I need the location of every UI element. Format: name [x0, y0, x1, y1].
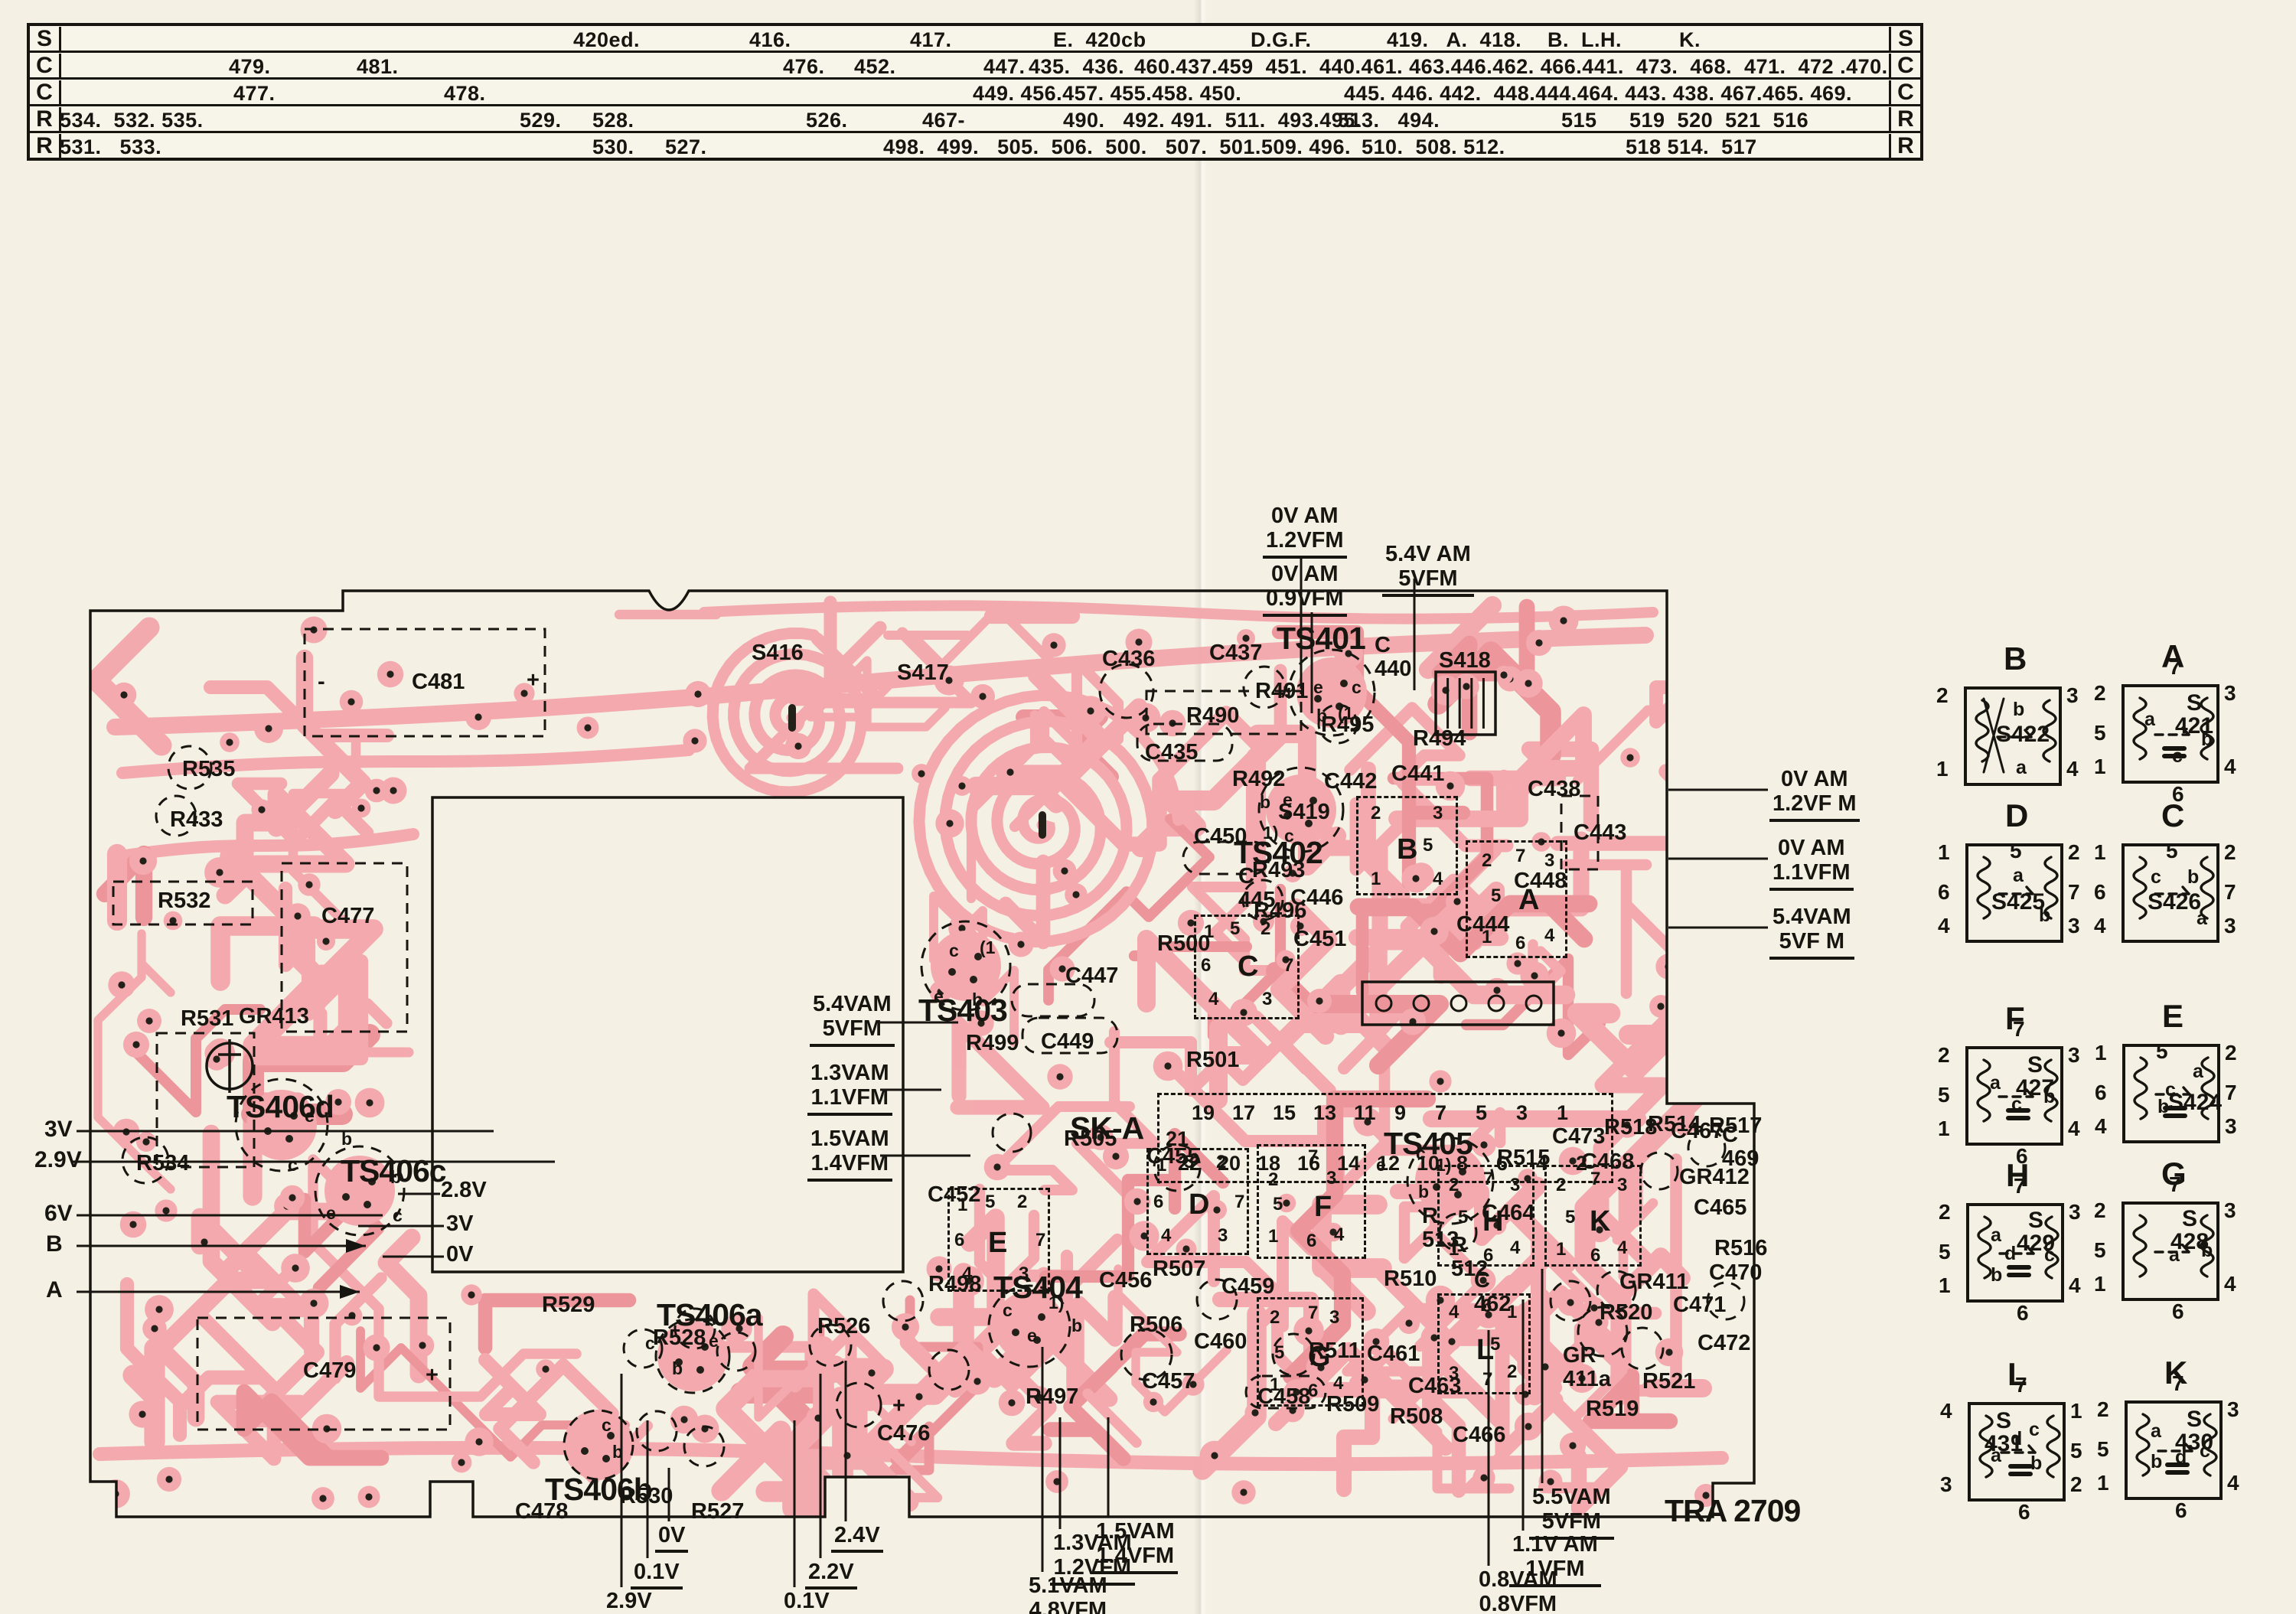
connector-pin: 2	[1371, 803, 1381, 824]
module-pin: 2	[2094, 681, 2106, 706]
sk-a-pin: 15	[1273, 1101, 1296, 1125]
module-pin: 5	[1939, 1240, 1951, 1264]
module-pin: 3	[2225, 1114, 2237, 1139]
voltage-callout: 0.1V	[631, 1560, 683, 1590]
module-coil-letter: a	[2197, 908, 2207, 930]
module-coil-letter: c	[2151, 866, 2161, 889]
module-coil-letter: a	[2016, 757, 2027, 779]
component-label: c	[1003, 1301, 1013, 1320]
component-label: C450	[1194, 825, 1247, 849]
component-label: GR411	[1619, 1270, 1688, 1294]
component-label: C470	[1709, 1261, 1762, 1285]
module-coil-letter: c	[2200, 1440, 2210, 1462]
connector-letter: C	[1238, 950, 1258, 983]
sk-a-pin: 7	[1435, 1101, 1446, 1125]
module-pin: 1	[2095, 1041, 2107, 1065]
module-pin: 6	[2094, 880, 2106, 905]
component-label: TS405	[1384, 1127, 1473, 1160]
module-letter: E	[2162, 998, 2183, 1035]
module-coil-letter: a	[2169, 1244, 2180, 1267]
component-label: c	[393, 1206, 403, 1225]
module-pin: 3	[2227, 1397, 2239, 1422]
component-label: R507	[1153, 1257, 1205, 1281]
component-label: 2.9V	[34, 1148, 82, 1172]
component-label: C444	[1456, 913, 1509, 937]
module-code: S424	[2168, 1091, 2222, 1114]
component-label: TS401	[1277, 621, 1365, 655]
component-label: R491	[1255, 680, 1308, 703]
module-pin: 2	[1938, 1043, 1950, 1068]
component-label: A	[46, 1278, 63, 1303]
sk-a-pin: 13	[1313, 1101, 1336, 1125]
module-pin: 3	[1940, 1472, 1952, 1497]
component-label: 1)	[1049, 1293, 1064, 1312]
transformer-module-G: GS 428ab7251346	[2122, 1156, 2219, 1355]
component-label: 0V	[446, 1243, 473, 1267]
module-pin: 7	[2169, 1172, 2181, 1197]
component-label: R527	[691, 1500, 744, 1524]
module-pin: 4	[2066, 757, 2079, 781]
transformer-module-L: LS 431adcb7431526	[1968, 1356, 2066, 1555]
component-label: c	[645, 1334, 655, 1353]
sk-a-pin: 16	[1297, 1152, 1320, 1175]
component-label: 6V	[44, 1202, 73, 1226]
module-pin: 6	[2018, 1500, 2030, 1524]
component-label: C452	[928, 1183, 980, 1207]
module-coil-letter: b	[2030, 1453, 2042, 1475]
component-label: R532	[158, 889, 210, 913]
voltage-callout: 5.4VAM 5VFM	[810, 992, 895, 1047]
component-label: C468	[1581, 1150, 1634, 1174]
component-label: b	[341, 1130, 352, 1149]
connector-pin: 3	[1218, 1225, 1228, 1247]
module-pin: 7	[2068, 880, 2080, 905]
module-pin: 1	[1938, 1117, 1950, 1141]
module-coil-letter: a	[1990, 1072, 2001, 1094]
component-label: C435	[1145, 741, 1198, 765]
voltage-callout: 1.5VAM 1.4VFM	[807, 1127, 892, 1182]
component-label: C478	[515, 1500, 568, 1524]
connector-pin: 5	[1490, 1334, 1500, 1355]
sk-a-pin: 11	[1354, 1101, 1376, 1125]
voltage-callout: 2.2V	[805, 1560, 857, 1590]
module-box: S 431adcb	[1968, 1402, 2066, 1502]
component-label: 1)	[1436, 1156, 1451, 1175]
connector-pin: 7	[1035, 1230, 1045, 1251]
component-label: e	[305, 1107, 315, 1126]
sk-a-pin: 20	[1218, 1152, 1241, 1175]
component-label: b	[672, 1359, 683, 1378]
connector-pin: 7	[1308, 1303, 1318, 1324]
component-label: C 462	[1474, 1269, 1511, 1317]
component-label: b	[612, 1443, 623, 1462]
component-label: R506	[1130, 1313, 1182, 1337]
component-label: SK-A	[1070, 1111, 1143, 1145]
component-label: e	[326, 1204, 336, 1223]
voltage-callout: 0V AM 1.2VFM	[1263, 504, 1347, 559]
module-pin: 1	[2070, 1399, 2082, 1423]
module-pin: 3	[2224, 681, 2236, 706]
module-pin: 5	[2094, 721, 2106, 745]
component-label: C436	[1102, 647, 1155, 671]
component-label: c	[1352, 678, 1362, 697]
component-label: b	[1071, 1316, 1082, 1335]
component-label: b	[390, 1168, 401, 1187]
voltage-callout: 5.4VAM 5VF M	[1769, 905, 1854, 960]
component-label: R529	[542, 1293, 595, 1317]
component-label: C448	[1514, 869, 1567, 893]
component-label: C451	[1293, 928, 1346, 951]
transformer-module-H: HS 429adbc7251346	[1966, 1157, 2064, 1356]
module-box: S422ba	[1964, 686, 2062, 786]
connector-pin: 5	[1274, 1342, 1284, 1364]
connector-pin: 4	[1334, 1224, 1344, 1246]
sk-a-pin: 1	[1557, 1101, 1568, 1125]
component-label: R519	[1586, 1397, 1639, 1421]
component-label: TS403	[918, 993, 1007, 1027]
module-pin: 6	[1938, 880, 1950, 905]
component-label: R516	[1714, 1237, 1767, 1260]
voltage-callout: 2.9V	[603, 1589, 655, 1614]
component-label: C460	[1194, 1330, 1247, 1354]
connector-pin: 3	[1262, 989, 1272, 1010]
module-pin: 1	[1938, 840, 1950, 865]
connector-pin: 6	[1306, 1231, 1316, 1252]
component-label: R492	[1232, 768, 1285, 791]
connector-pin: 6	[1515, 933, 1525, 954]
connector-pin: 5	[1230, 918, 1240, 940]
module-coil-letter: b	[2201, 1240, 2213, 1262]
component-label: R528	[653, 1326, 706, 1350]
module-pin: 5	[2070, 1439, 2082, 1463]
module-letter: B	[2004, 641, 2027, 677]
module-pin: 4	[2095, 1114, 2107, 1139]
component-label: C 440	[1375, 634, 1411, 682]
component-label: TS404	[993, 1270, 1082, 1304]
module-pin: 4	[2224, 1272, 2236, 1296]
module-code: S422	[1996, 723, 2050, 746]
transformer-module-K: KS 430abdc7251346	[2125, 1355, 2223, 1554]
voltage-callout: 2.4V	[831, 1523, 883, 1553]
module-coil-letter: b	[2187, 866, 2199, 889]
connector-pin: 6	[1590, 1245, 1600, 1267]
component-label: R498	[928, 1273, 981, 1296]
module-pin: 4	[2069, 1273, 2081, 1298]
module-pin: 3	[2068, 914, 2080, 938]
module-coil-letter: a	[1991, 1445, 2001, 1467]
connector-pin: 1	[1371, 869, 1381, 890]
component-label: c	[1416, 1144, 1426, 1163]
module-coil-letter: d	[2004, 1243, 2016, 1265]
component-label: C447	[1065, 964, 1118, 988]
connector-letter: D	[1189, 1188, 1209, 1221]
component-label: b	[1316, 706, 1327, 725]
component-label: R511	[1309, 1339, 1361, 1363]
component-label: C441	[1391, 762, 1444, 786]
component-label: 2.8V	[441, 1179, 487, 1202]
connector-pin: 3	[1433, 803, 1443, 824]
connector-pin: 5	[1423, 835, 1433, 856]
module-coil-letter: b	[2039, 905, 2050, 927]
module-pin: 7	[2169, 655, 2181, 680]
connector-pin: 5	[985, 1192, 995, 1213]
module-pin: 3	[2224, 914, 2236, 938]
sk-a-pin: 5	[1476, 1101, 1487, 1125]
component-label: TS406d	[227, 1090, 334, 1123]
connector-pin: 5	[1491, 885, 1501, 907]
sk-a-pin: 3	[1516, 1101, 1528, 1125]
connector-pin: 4	[1208, 989, 1218, 1010]
transformer-module-C: CS426cba1645273	[2122, 797, 2219, 996]
component-label: C456	[1099, 1269, 1152, 1293]
component-label: S416	[752, 641, 804, 665]
module-pin: 1	[2094, 840, 2106, 865]
connector-pin: 7	[1234, 1192, 1244, 1213]
component-label: C477	[321, 905, 374, 928]
module-pin: 5	[2097, 1437, 2109, 1462]
module-letter: C	[2161, 797, 2184, 834]
component-label: 1)	[1263, 823, 1278, 843]
module-pin: 7	[2224, 880, 2236, 905]
module-pin: 3	[2066, 683, 2079, 708]
connector-pin: 5	[1273, 1194, 1283, 1215]
module-coil-letter: c	[2029, 1419, 2040, 1441]
connector-pin: 4	[1544, 925, 1554, 947]
module-pin: 2	[2225, 1041, 2237, 1065]
component-label: c	[1284, 827, 1294, 846]
module-pin: 2	[1936, 683, 1949, 708]
module-pin: 1	[2097, 1471, 2109, 1495]
component-label: C449	[1041, 1030, 1094, 1054]
connector-letter: F	[1314, 1191, 1332, 1224]
connector-box-C: C1526743	[1194, 915, 1300, 1019]
module-pin: 3	[2224, 1198, 2236, 1223]
voltage-callout: 0V AM 1.2VF M	[1769, 767, 1860, 822]
component-label: C465	[1694, 1196, 1746, 1220]
component-label: e	[1283, 791, 1293, 810]
voltage-callout: 1.3VAM 1.1VFM	[807, 1061, 892, 1116]
module-coil-letter: b	[1991, 1264, 2002, 1286]
connector-pin: 2	[1482, 850, 1492, 872]
component-label: R490	[1186, 704, 1239, 728]
voltage-callout: 5.5VAM 5VFM	[1529, 1485, 1614, 1540]
component-label: c	[949, 941, 959, 960]
component-label: C461	[1367, 1342, 1420, 1366]
component-label: C446	[1290, 886, 1343, 910]
component-label: C463	[1408, 1374, 1461, 1398]
module-coil-letter: a	[2013, 865, 2024, 887]
module-pin: 7	[2172, 1371, 2184, 1396]
connector-letter: K	[1590, 1205, 1610, 1238]
module-pin: 6	[2095, 1081, 2107, 1105]
component-label: C471	[1673, 1293, 1726, 1317]
module-coil-letter: c	[2044, 1244, 2055, 1267]
module-pin: 7	[2015, 1373, 2027, 1397]
component-label: e	[1376, 1156, 1386, 1175]
module-pin: 2	[2224, 840, 2236, 865]
connector-pin: 1	[1556, 1239, 1566, 1260]
voltage-callout: 1.1V AM 1VFM	[1509, 1532, 1601, 1587]
voltage-callout: 0V AM 0.9VFM	[1263, 562, 1347, 617]
component-label: R497	[1026, 1385, 1078, 1409]
component-label: R494	[1413, 727, 1466, 751]
module-pin: 2	[2070, 1472, 2082, 1497]
module-pin: 5	[2010, 839, 2022, 863]
module-pin: 4	[2094, 914, 2106, 938]
component-label: S418	[1439, 649, 1491, 673]
module-coil-letter: a	[2151, 1420, 2161, 1443]
module-coil-letter: c	[2011, 1094, 2022, 1116]
module-coil-letter: d	[2011, 1428, 2022, 1450]
component-label: R499	[966, 1032, 1019, 1055]
module-coil-letter: b	[2157, 1096, 2169, 1118]
component-label: C476	[877, 1422, 930, 1446]
connector-pin: 4	[1510, 1237, 1520, 1259]
transformer-module-D: DS425ab1645273	[1965, 797, 2063, 996]
component-label: R535	[182, 758, 235, 781]
component-label: R509	[1326, 1393, 1379, 1417]
connector-pin: 7	[1515, 846, 1525, 867]
connector-pin: 2	[1017, 1192, 1027, 1213]
connector-pin: 6	[1201, 955, 1211, 977]
connector-pin: 4	[1161, 1225, 1171, 1247]
component-label: C466	[1453, 1423, 1505, 1447]
voltage-callout: 0.1V	[781, 1589, 833, 1614]
component-label: C437	[1209, 641, 1262, 665]
module-pin: 2	[2097, 1397, 2109, 1422]
module-coil-letter: c	[2172, 745, 2183, 768]
sk-a-pin: 17	[1232, 1101, 1255, 1125]
component-label: GR 411a	[1563, 1344, 1611, 1392]
module-pin: 1	[2094, 755, 2106, 779]
voltage-callout: 0V AM 1.1VFM	[1769, 836, 1854, 891]
connector-pin: 5	[1458, 1207, 1468, 1228]
module-coil-letter: b	[2151, 1451, 2162, 1473]
connector-letter: E	[988, 1227, 1007, 1260]
component-label: GR413	[239, 1005, 309, 1029]
module-code: S426	[2148, 891, 2201, 914]
voltage-callout: 5.4V AM 5VFM	[1382, 542, 1474, 597]
component-label: C443	[1574, 821, 1626, 845]
connector-pin: 4	[1433, 869, 1443, 890]
module-letter: D	[2005, 797, 2028, 834]
component-label: S417	[897, 661, 949, 685]
component-label: R526	[817, 1315, 870, 1338]
component-label: GR412	[1679, 1166, 1750, 1189]
component-label: (1	[980, 938, 995, 957]
module-box: S 427acb	[1965, 1046, 2063, 1146]
connector-letter: B	[1397, 833, 1417, 866]
connector-pin: 3	[1329, 1307, 1339, 1329]
component-label: C459	[1221, 1275, 1274, 1299]
component-label: 3V	[44, 1117, 73, 1142]
component-label: C464	[1482, 1202, 1534, 1225]
component-label: e	[1027, 1326, 1037, 1345]
module-pin: 6	[2017, 1301, 2029, 1325]
component-label: b	[1260, 793, 1270, 812]
module-coil-letter: b	[2013, 699, 2024, 721]
component-label: C442	[1324, 770, 1377, 794]
connector-pin: 4	[1333, 1373, 1343, 1394]
component-label: C473	[1552, 1125, 1605, 1149]
connector-pin: 2	[1507, 1361, 1517, 1383]
component-label: R500	[1157, 932, 1210, 956]
module-box: S424acb	[2122, 1044, 2220, 1143]
voltage-callout: 0V	[655, 1523, 688, 1553]
connector-pin: 6	[954, 1230, 964, 1251]
connector-box-A: A2735164	[1466, 840, 1567, 958]
component-label: R531	[181, 1007, 233, 1031]
connector-pin: 5	[1565, 1207, 1575, 1228]
component-label: C458	[1257, 1385, 1310, 1409]
component-label: R534	[136, 1152, 189, 1175]
module-box: S 428ab	[2122, 1202, 2219, 1301]
module-pin: 2	[2094, 1198, 2106, 1223]
component-label: R521	[1642, 1370, 1695, 1394]
module-coil-letter: d	[2175, 1446, 2187, 1469]
component-label: C438	[1528, 778, 1580, 801]
module-pin: 7	[2225, 1081, 2237, 1105]
connector-pin: 2	[1270, 1307, 1280, 1329]
module-coil-letter: b	[2201, 729, 2213, 751]
component-label: C481	[412, 670, 465, 694]
component-label: R510	[1384, 1267, 1437, 1291]
module-pin: 2	[1939, 1200, 1951, 1224]
component-label: +	[892, 1394, 905, 1418]
module-pin: 4	[1938, 914, 1950, 938]
connector-pin: 6	[1153, 1192, 1163, 1213]
module-pin: 4	[2068, 1117, 2080, 1141]
connector-pin: 7	[1482, 1369, 1492, 1391]
module-pin: 6	[2175, 1498, 2187, 1523]
component-label: R501	[1186, 1048, 1239, 1072]
module-pin: 5	[1938, 1083, 1950, 1107]
component-label: B	[46, 1232, 63, 1257]
component-label: TRA 2709	[1665, 1494, 1800, 1528]
module-pin: 4	[2224, 755, 2236, 779]
component-label: C467	[1671, 1120, 1724, 1143]
component-label: (1	[1338, 704, 1353, 723]
component-label: +	[527, 669, 540, 693]
module-coil-letter: b	[2043, 1086, 2055, 1108]
module-code: S425	[1991, 891, 2045, 914]
connector-pin: 4	[1449, 1302, 1459, 1323]
module-box: S 429adbc	[1966, 1203, 2064, 1303]
module-pin: 1	[2094, 1272, 2106, 1296]
component-label: C 445	[1238, 865, 1275, 913]
module-pin: 5	[2166, 839, 2178, 863]
component-label: b	[972, 990, 983, 1009]
component-label: c	[288, 1156, 298, 1175]
component-label: b	[1418, 1182, 1429, 1202]
module-pin: 3	[2069, 1200, 2081, 1224]
module-pin: 7	[2013, 1017, 2025, 1042]
module-pin: 6	[2172, 1299, 2184, 1324]
connector-pin: 1	[1268, 1226, 1278, 1247]
module-coil-letter: a	[2193, 1061, 2203, 1083]
sk-a-pin: 9	[1394, 1101, 1406, 1125]
component-label: e	[934, 987, 944, 1006]
module-pin: 4	[2227, 1471, 2239, 1495]
module-pin: 4	[1940, 1399, 1952, 1423]
component-label: C457	[1142, 1370, 1195, 1394]
component-label: C479	[303, 1359, 356, 1383]
component-label: R520	[1600, 1301, 1652, 1325]
component-label: R508	[1390, 1405, 1443, 1429]
module-pin: 5	[2094, 1238, 2106, 1263]
component-label: -	[318, 670, 325, 694]
component-label: 3V	[446, 1212, 473, 1236]
